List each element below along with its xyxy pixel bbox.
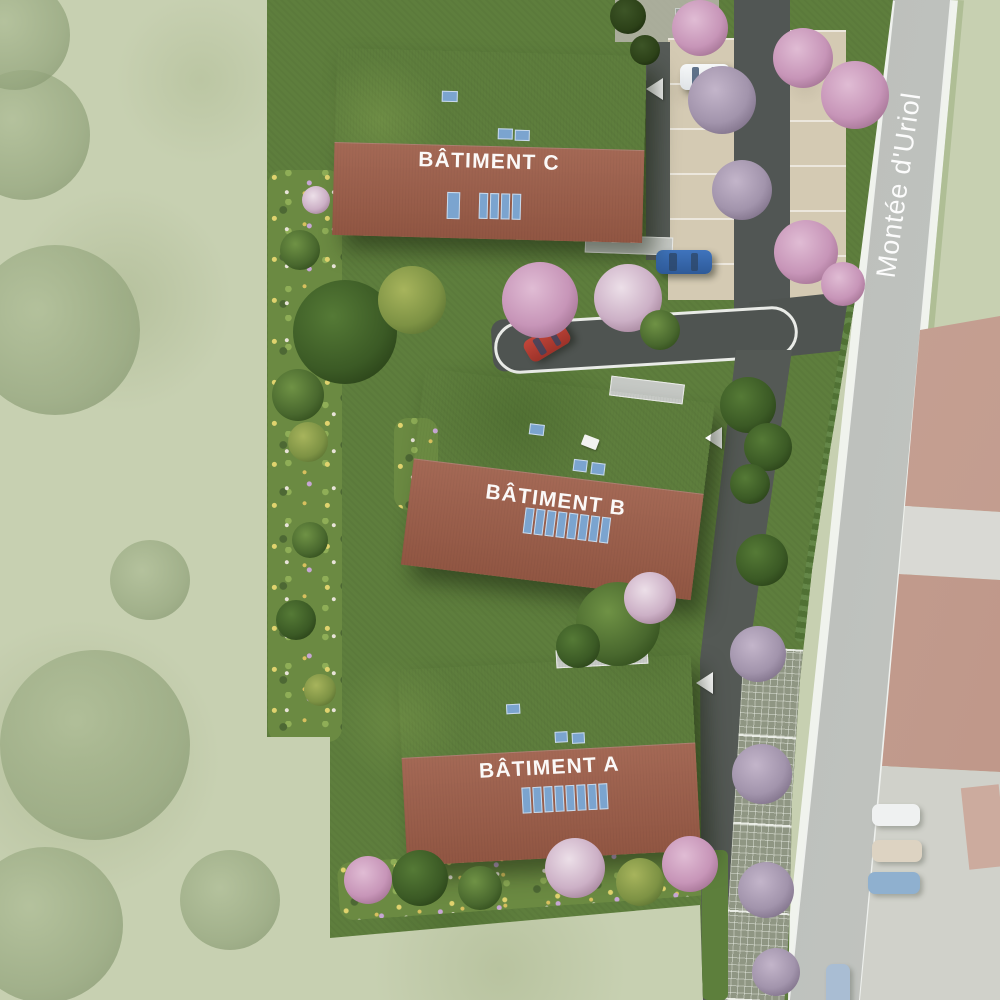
blossom-tree-white (624, 572, 676, 624)
blossom-tree-pink (821, 262, 865, 306)
tree-yellow-green (304, 674, 336, 706)
building-batiment-a: BÂTIMENT A (397, 655, 701, 866)
tree-purple-grey (730, 626, 786, 682)
tree-yellow-green (616, 858, 664, 906)
site-plan-rendering: BÂTIMENT C BÂTIMENT B BÂTIMENT A Montée … (0, 0, 1000, 1000)
faded-tree (110, 540, 190, 620)
tree-yellow-green (378, 266, 446, 334)
direction-arrow (646, 78, 663, 100)
tree-dark-green (392, 850, 448, 906)
driving-car-blue (826, 964, 850, 1000)
solar-panel-row (521, 783, 608, 813)
skylight (554, 731, 568, 743)
tree-purple-grey (712, 160, 772, 220)
tree-dark-green (736, 534, 788, 586)
skylight (506, 704, 521, 715)
parked-car-white (872, 804, 920, 826)
tree-purple-grey (738, 862, 794, 918)
driveway-building-c (646, 42, 670, 260)
conifer-tree (630, 35, 660, 65)
tree-dark-green (730, 464, 770, 504)
skylight (515, 130, 530, 141)
building-batiment-c: BÂTIMENT C (332, 48, 647, 243)
building-batiment-b: BÂTIMENT B (401, 368, 715, 600)
faded-tree (180, 850, 280, 950)
skylight (529, 423, 545, 436)
skylight (442, 91, 458, 102)
tree-green (272, 369, 324, 421)
skylight (573, 459, 588, 473)
faded-tree (0, 650, 190, 840)
parked-car-blue (656, 250, 712, 274)
solar-panel-row (479, 193, 522, 220)
roof-north-c (335, 48, 647, 150)
parked-car-blue (868, 872, 920, 894)
tree-green (458, 866, 502, 910)
tree-green (280, 230, 320, 270)
skylight (572, 732, 586, 744)
direction-arrow (696, 672, 713, 694)
tree-dark-green (276, 600, 316, 640)
blossom-tree-white (545, 838, 605, 898)
parked-car-beige (872, 840, 922, 862)
tree-green (640, 310, 680, 350)
blossom-tree-pink (672, 0, 728, 56)
tree-purple-grey (688, 66, 756, 134)
blossom-tree-pink (821, 61, 889, 129)
blossom-tree-pink (344, 856, 392, 904)
tree-purple-grey (752, 948, 800, 996)
skylight (590, 462, 605, 476)
tree-yellow-green (288, 422, 328, 462)
blossom-tree-pink (502, 262, 578, 338)
tree-green (292, 522, 328, 558)
skylight (498, 128, 513, 139)
tree-dark-green (556, 624, 600, 668)
solar-panel (447, 192, 461, 219)
blossom-tree-pink (662, 836, 718, 892)
blossom-tree-white (302, 186, 330, 214)
roof-north-a (397, 655, 695, 758)
tree-purple-grey (732, 744, 792, 804)
